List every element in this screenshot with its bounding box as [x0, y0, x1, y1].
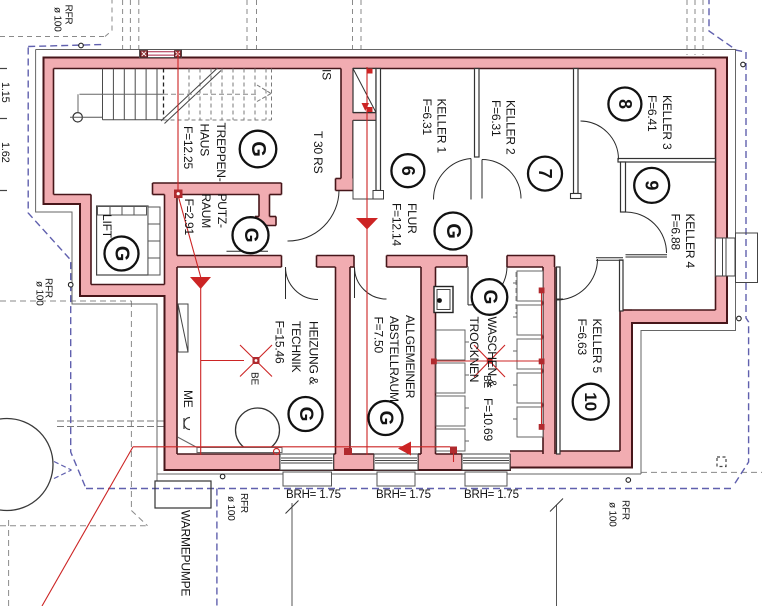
svg-text:RFR: RFR: [63, 5, 74, 25]
svg-text:BRH= 1.75: BRH= 1.75: [286, 489, 341, 501]
svg-text:8: 8: [615, 99, 635, 109]
svg-text:BRH= 1.75: BRH= 1.75: [376, 489, 431, 501]
svg-text:TREPPEN-: TREPPEN-: [214, 123, 228, 182]
svg-text:ME: ME: [181, 390, 195, 408]
svg-text:TROCKNEN: TROCKNEN: [467, 317, 481, 383]
svg-text:F=12.25: F=12.25: [181, 126, 195, 169]
svg-text:G: G: [295, 407, 316, 422]
svg-text:G: G: [247, 141, 269, 157]
svg-text:BE: BE: [249, 372, 260, 385]
svg-text:1.62: 1.62: [0, 142, 11, 163]
svg-text:BRH= 1.75: BRH= 1.75: [464, 489, 519, 501]
svg-text:KELLER 5: KELLER 5: [590, 319, 604, 374]
svg-text:F=2.91: F=2.91: [182, 199, 196, 236]
svg-text:KELLER 1: KELLER 1: [434, 99, 448, 154]
svg-text:KELLER 3: KELLER 3: [660, 95, 674, 150]
svg-text:F=6.31: F=6.31: [420, 99, 434, 136]
svg-text:HAUS: HAUS: [197, 124, 211, 157]
svg-text:ALLGEMEINER: ALLGEMEINER: [403, 315, 417, 399]
svg-text:IS: IS: [319, 69, 333, 80]
svg-text:G: G: [442, 223, 464, 239]
svg-text:F=6.41: F=6.41: [645, 95, 659, 132]
svg-text:KELLER 2: KELLER 2: [503, 100, 517, 155]
svg-text:F=10.69: F=10.69: [481, 398, 495, 441]
svg-text:1.15: 1.15: [0, 82, 11, 103]
svg-text:F=12.14: F=12.14: [389, 203, 403, 246]
svg-text:RFR: RFR: [620, 500, 631, 520]
svg-text:G: G: [240, 228, 261, 243]
svg-text:WARMEPUMPE: WARMEPUMPE: [178, 510, 192, 596]
svg-text:T 30 RS: T 30 RS: [311, 131, 325, 174]
svg-text:HEIZUNG &: HEIZUNG &: [306, 321, 320, 385]
svg-text:G: G: [111, 246, 133, 262]
svg-text:TECHNIK: TECHNIK: [289, 321, 303, 372]
svg-text:ø 100: ø 100: [607, 502, 618, 527]
svg-text:ABSTELLRAUM: ABSTELLRAUM: [387, 316, 401, 402]
svg-text:10: 10: [581, 392, 600, 411]
svg-text:7: 7: [535, 169, 555, 179]
svg-text:ø 100: ø 100: [52, 7, 63, 32]
svg-text:PUTZ-: PUTZ-: [215, 194, 229, 229]
svg-text:FLUR: FLUR: [405, 203, 419, 234]
svg-text:6: 6: [398, 166, 418, 176]
svg-text:LIFT: LIFT: [100, 214, 114, 239]
svg-text:F=6.88: F=6.88: [668, 214, 682, 251]
svg-text:ø 100: ø 100: [34, 281, 45, 306]
svg-text:F=6.63: F=6.63: [575, 319, 589, 356]
svg-text:KELLER 4: KELLER 4: [683, 214, 697, 269]
svg-text:F=6.31: F=6.31: [489, 100, 503, 137]
svg-text:ø 100: ø 100: [225, 496, 236, 521]
svg-text:F=7.50: F=7.50: [371, 317, 385, 354]
svg-text:G: G: [375, 411, 396, 426]
svg-text:F=15.46: F=15.46: [272, 321, 286, 364]
svg-text:RAUM: RAUM: [199, 194, 213, 229]
svg-text:9: 9: [642, 180, 662, 190]
svg-text:BE: BE: [481, 375, 492, 388]
svg-text:RFR: RFR: [238, 493, 249, 513]
svg-text:G: G: [479, 290, 500, 305]
